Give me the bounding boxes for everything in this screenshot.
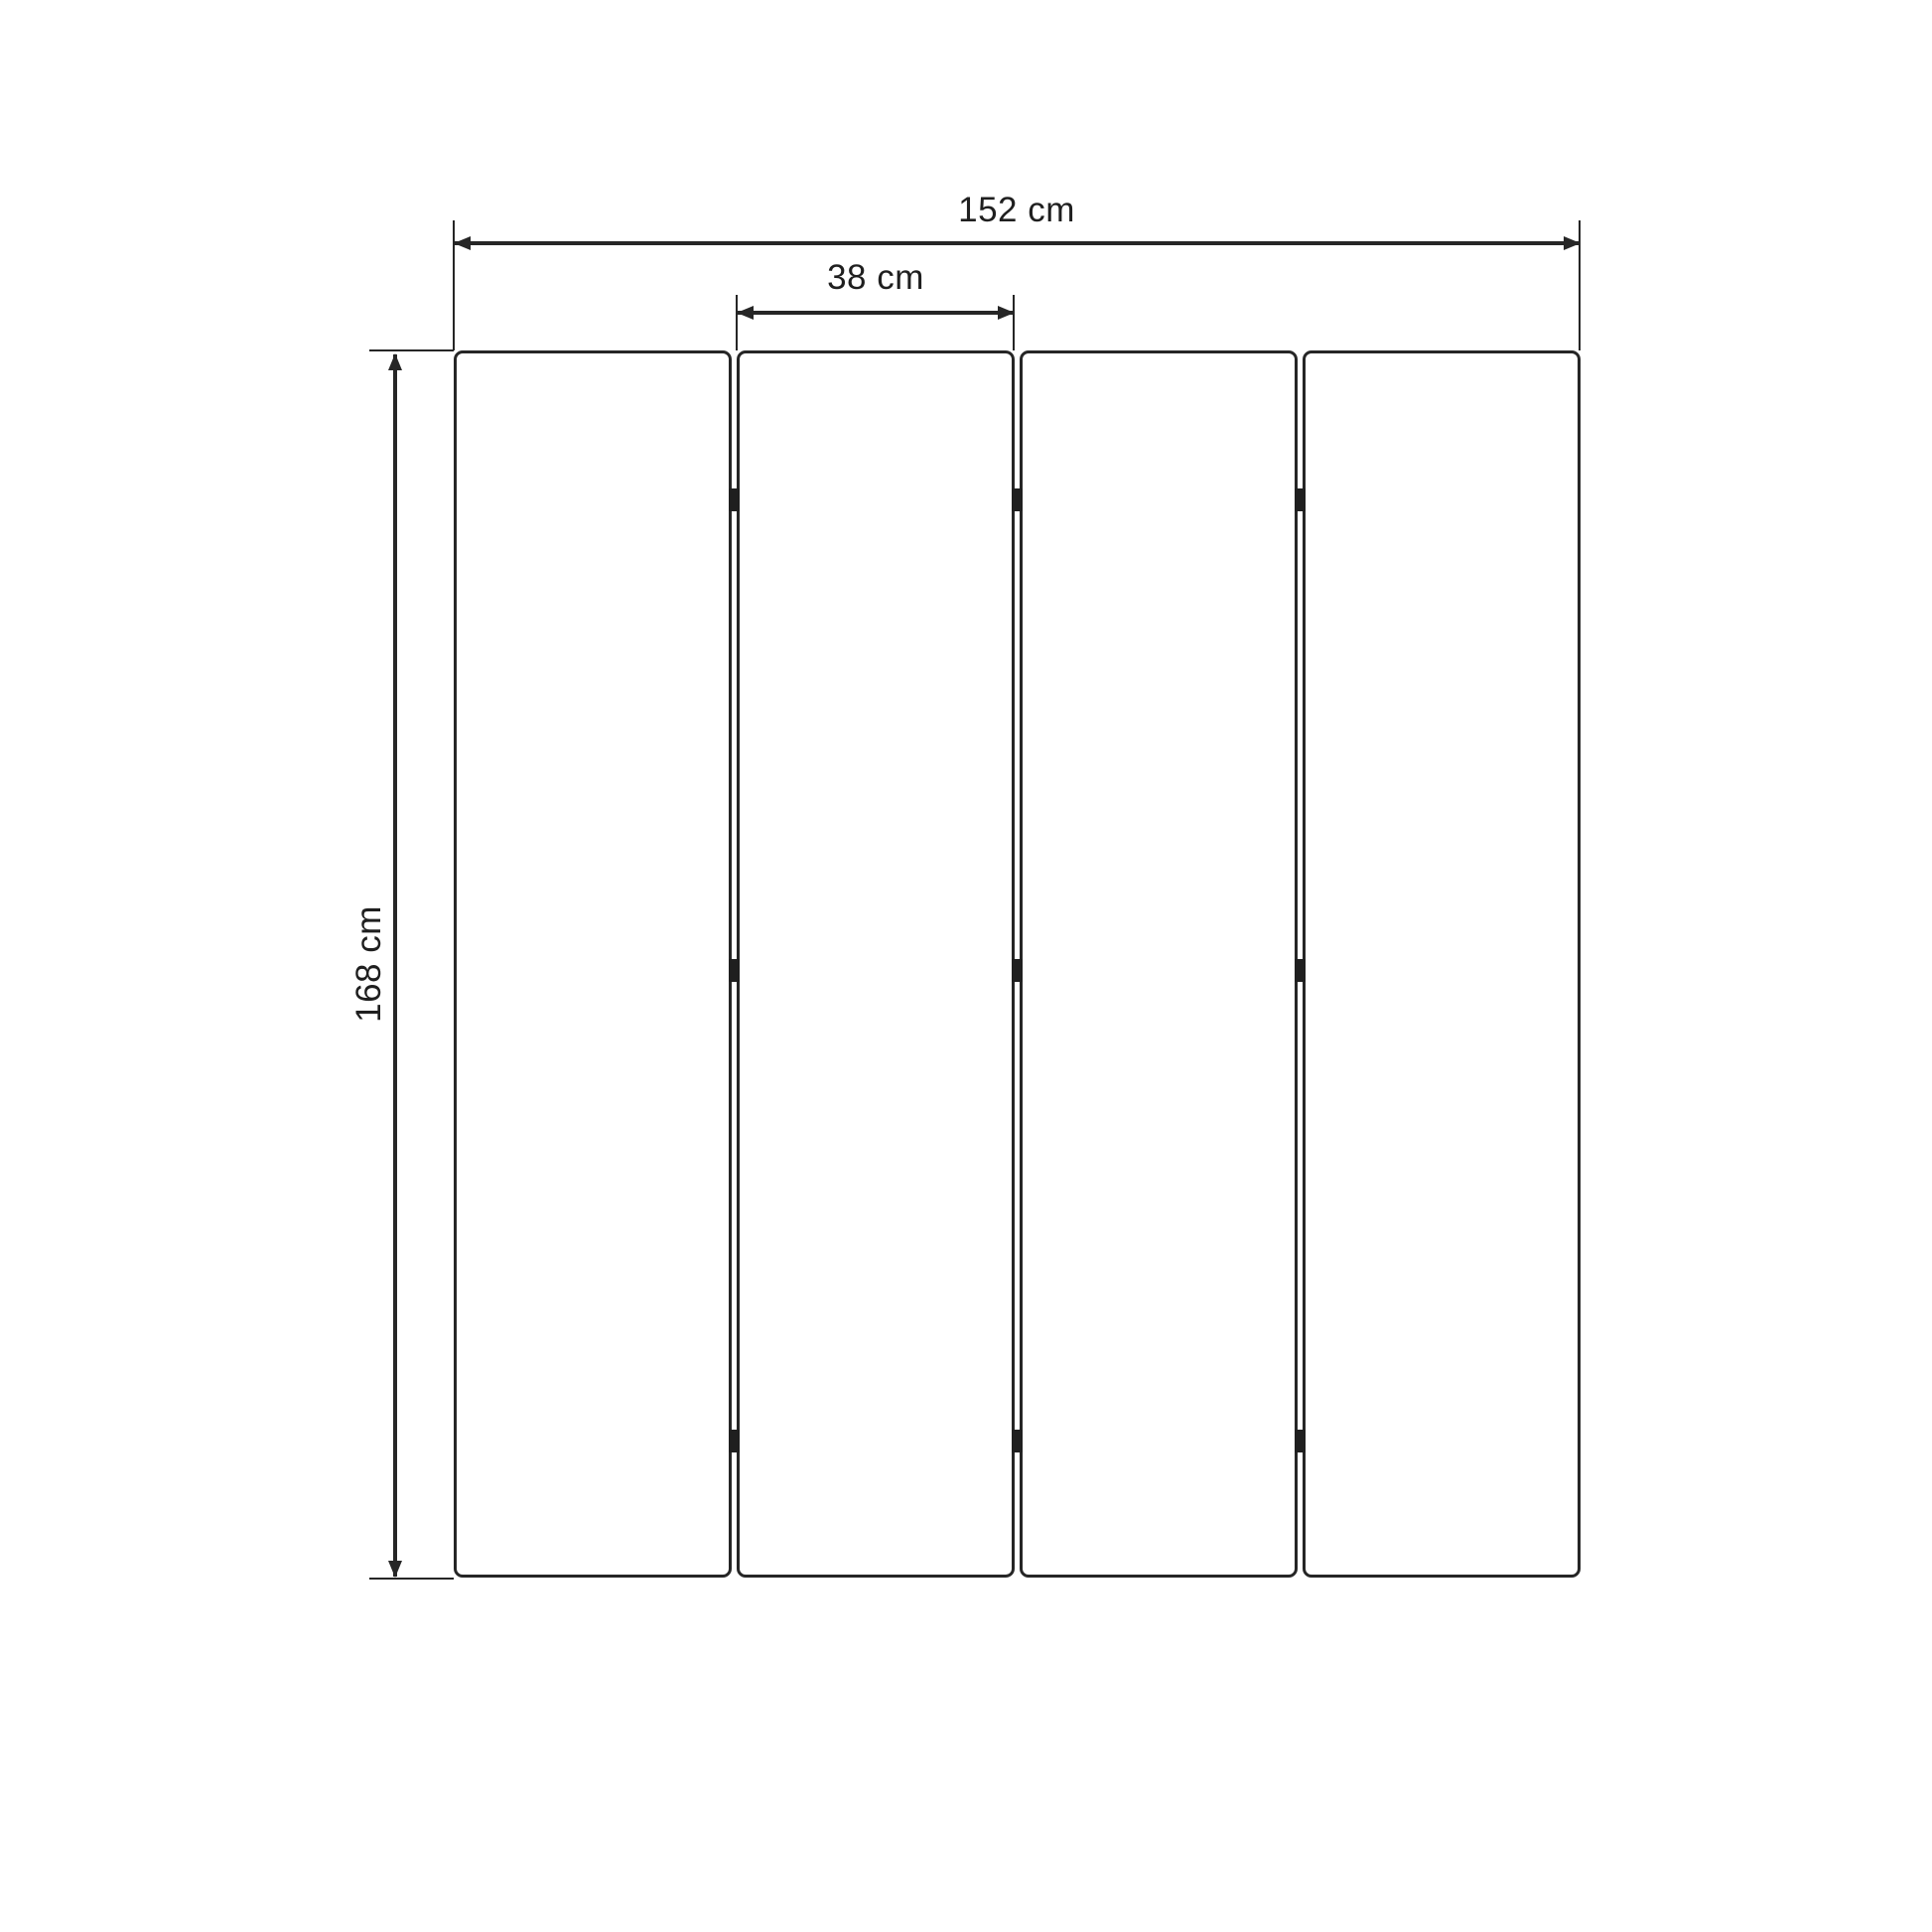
extension-line-left-panel [736,295,738,350]
hinge-icon [1012,488,1023,511]
panel-1 [454,350,732,1578]
dimension-diagram: 152 cm 38 cm 168 cm [0,0,1932,1932]
hinge-icon [1295,488,1306,511]
extension-line-bottom-height [369,1578,454,1580]
arrow-left-icon [454,236,471,250]
arrow-left-icon [737,306,754,320]
height-label: 168 cm [349,905,389,1023]
total-width-label: 152 cm [958,191,1075,230]
hinge-icon [1295,959,1306,982]
extension-line-right-panel [1013,295,1015,350]
hinge-icon [1012,1430,1023,1452]
extension-line-top-height [369,349,454,351]
extension-line-right-total [1579,220,1581,350]
panel-width-dimension-line [738,311,1014,315]
panel-width-label: 38 cm [827,258,924,298]
panel-3 [1020,350,1298,1578]
extension-line-left-total [453,220,455,350]
panel-4 [1303,350,1581,1578]
arrow-up-icon [388,353,402,370]
panel-2 [737,350,1015,1578]
hinge-icon [729,959,740,982]
hinge-icon [729,488,740,511]
height-dimension-line [393,354,397,1577]
hinge-icon [729,1430,740,1452]
total-width-dimension-line [455,241,1580,245]
arrow-down-icon [388,1561,402,1578]
hinge-icon [1295,1430,1306,1452]
hinge-icon [1012,959,1023,982]
